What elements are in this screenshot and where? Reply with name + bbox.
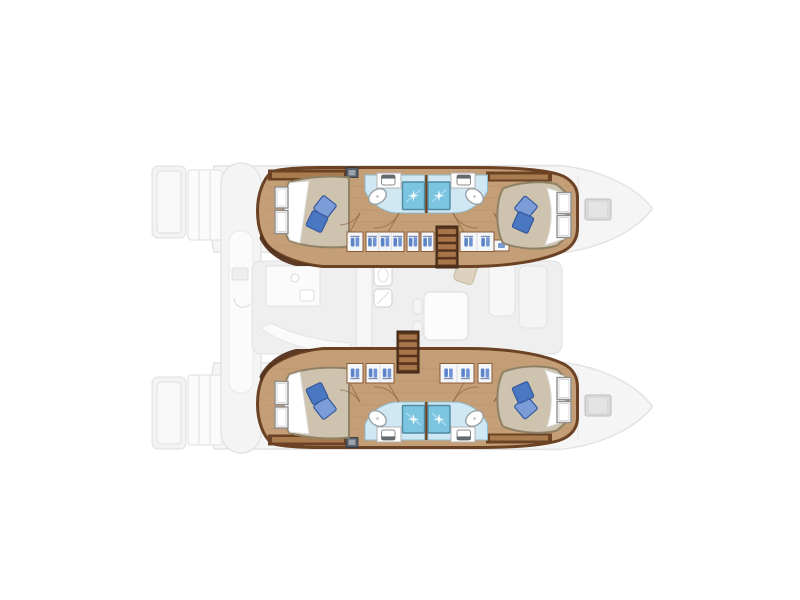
stair-tread <box>438 259 456 264</box>
sink-drain <box>473 417 476 420</box>
clothes-icon <box>381 238 385 247</box>
clothes-icon <box>369 369 373 378</box>
clothes-icon <box>351 238 355 247</box>
galley-column <box>356 261 372 347</box>
stair-tread <box>438 229 456 234</box>
toilet-lid <box>382 175 396 179</box>
clothes-icon <box>388 369 392 378</box>
clothes-icon <box>469 238 473 247</box>
stair-tread <box>399 350 417 355</box>
clothes-icon <box>481 369 485 378</box>
clothes-icon <box>368 238 372 247</box>
clothes-icon <box>486 238 490 247</box>
saloon-lounge <box>489 262 515 316</box>
clothes-icon <box>423 238 427 247</box>
galley-faucet <box>291 274 299 282</box>
hanger-rail-icon <box>393 236 402 237</box>
hanger-rail-icon <box>382 378 391 379</box>
hanger-rail-icon <box>444 378 453 379</box>
hanger-rail-icon <box>481 236 490 237</box>
stair-tread <box>438 244 456 249</box>
clothes-icon <box>414 238 418 247</box>
clothes-icon <box>398 238 402 247</box>
clothes-icon <box>481 238 485 247</box>
dining-chair <box>413 299 422 314</box>
wardrobe-locker <box>478 364 492 384</box>
clothes-icon <box>466 369 470 378</box>
toilet-lid <box>382 436 396 440</box>
galley-detail <box>300 290 314 301</box>
stair-tread <box>399 334 417 339</box>
toilet-lid <box>457 436 471 440</box>
hull-top <box>258 168 578 269</box>
stair-tread <box>399 342 417 347</box>
sink-drain <box>376 417 379 420</box>
deck-hatch-inner <box>589 398 607 413</box>
hanger-rail-icon <box>350 378 359 379</box>
transom-step-inner <box>157 382 181 444</box>
stair-tread <box>438 237 456 242</box>
hanger-rail-icon <box>423 236 432 237</box>
wardrobe-locker <box>347 364 363 384</box>
hanger-rail-icon <box>461 378 470 379</box>
hanger-rail-icon <box>408 236 417 237</box>
clothes-icon <box>428 238 432 247</box>
hanger-rail-icon <box>350 236 359 237</box>
clothes-icon <box>374 369 378 378</box>
floorplan-svg <box>0 0 800 600</box>
fwd-headboard-shelf <box>490 175 548 180</box>
clothes-icon <box>409 238 413 247</box>
dining-table <box>424 292 468 340</box>
hanger-rail-icon <box>368 378 377 379</box>
swim-platform <box>188 375 222 445</box>
stair-tread <box>399 365 417 370</box>
transom-step-inner <box>157 171 181 233</box>
swim-platform <box>188 170 222 240</box>
clothes-icon <box>486 369 490 378</box>
clothes-icon <box>386 238 390 247</box>
wardrobe-locker <box>421 232 434 252</box>
clothes-icon <box>449 369 453 378</box>
deck-hatch-inner <box>589 202 607 217</box>
clothes-icon <box>393 238 397 247</box>
sink-drain <box>376 195 379 198</box>
hanger-rail-icon <box>480 378 489 379</box>
sink-drain <box>473 195 476 198</box>
stair-tread <box>438 252 456 257</box>
saloon-lounge <box>519 266 547 328</box>
deck-vent-inner <box>349 170 356 176</box>
clothes-icon <box>444 369 448 378</box>
toilet-lid <box>457 175 471 179</box>
clothes-icon <box>383 369 387 378</box>
helm-console <box>232 268 248 280</box>
hanger-rail-icon <box>464 236 473 237</box>
clothes-icon <box>464 238 468 247</box>
stair-tread <box>399 357 417 362</box>
fwd-headboard-shelf <box>490 436 548 441</box>
clothes-icon <box>356 369 360 378</box>
catamaran-floorplan <box>0 0 800 600</box>
clothes-icon <box>351 369 355 378</box>
deck-vent-inner <box>349 440 356 446</box>
clothes-icon <box>461 369 465 378</box>
clothes-icon <box>373 238 377 247</box>
cockpit-bench <box>229 231 253 393</box>
wardrobe-locker <box>347 232 363 252</box>
hanger-rail-icon <box>368 236 377 237</box>
clothes-icon <box>356 238 360 247</box>
hanger-rail-icon <box>380 236 389 237</box>
